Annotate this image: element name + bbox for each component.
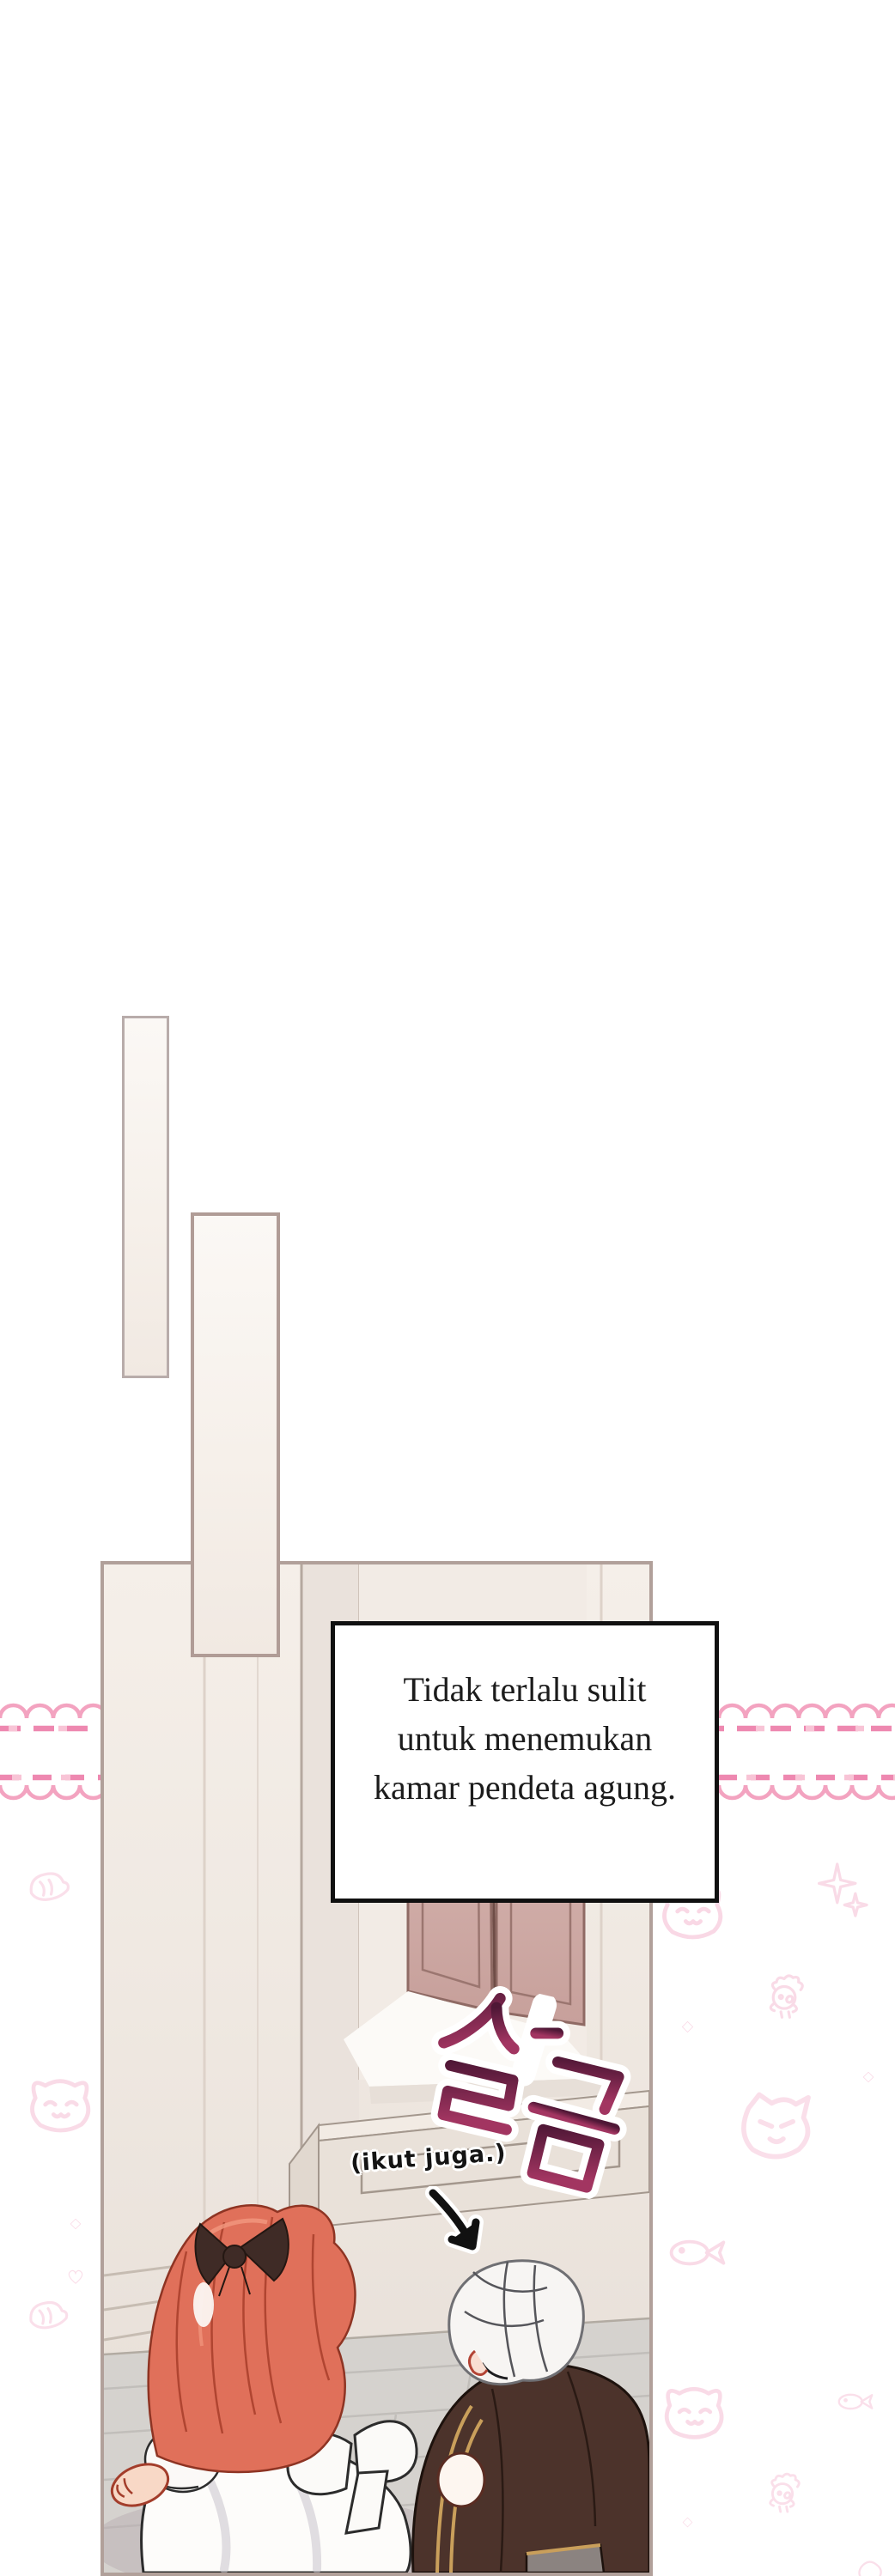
- heart-doodle: [65, 2266, 86, 2287]
- dot-doodle: [69, 2217, 82, 2231]
- diamond-doodle: [862, 2070, 875, 2084]
- shell-doodle: [21, 1859, 76, 1914]
- blob-doodle: [849, 2551, 889, 2576]
- lion-doodle: [758, 2468, 807, 2518]
- narration-box: Tidak terlalu sulit untuk menemukan kama…: [331, 1621, 719, 1903]
- fish-doodle: [665, 2219, 730, 2284]
- webtoon-page: Tidak terlalu sulit untuk menemukan kama…: [0, 0, 895, 2576]
- grumpy-cat-doodle: [728, 2075, 824, 2172]
- cat-face-doodle: [654, 2372, 734, 2452]
- down-right-arrow-icon: [419, 2186, 495, 2269]
- narration-line-1: Tidak terlalu sulit: [404, 1665, 647, 1714]
- narrow-panel-1: [122, 1016, 169, 1378]
- fish-doodle: [835, 2380, 876, 2421]
- lion-doodle: [757, 1969, 812, 2024]
- narration-line-2: untuk menemukan: [398, 1714, 653, 1763]
- cat-face-doodle: [19, 2063, 101, 2146]
- diamond-doodle: [680, 2020, 695, 2034]
- sparkle-doodle: [813, 1861, 870, 1917]
- dot-doodle: [681, 2516, 694, 2529]
- boy-hand: [438, 2453, 484, 2506]
- shell-doodle: [21, 2288, 75, 2342]
- narrow-panel-2: [191, 1212, 280, 1657]
- narration-line-3: kamar pendeta agung.: [374, 1763, 676, 1812]
